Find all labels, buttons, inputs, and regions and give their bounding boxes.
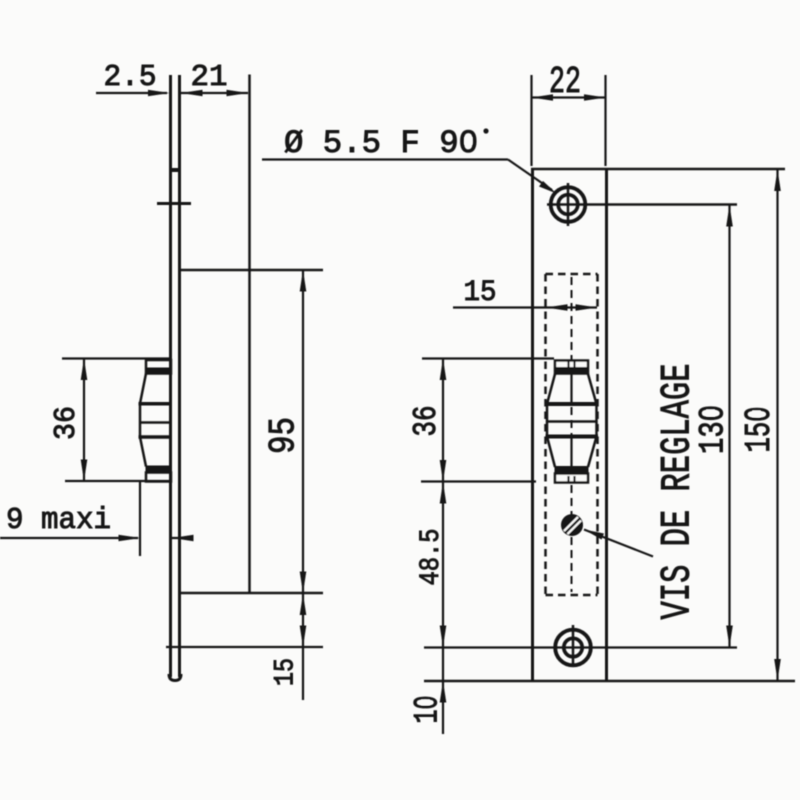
svg-text:9 maxi: 9 maxi [6,503,111,538]
svg-text:VIS DE REGLAGE: VIS DE REGLAGE [654,364,702,620]
svg-text:22: 22 [549,61,581,104]
svg-text:36: 36 [49,406,84,440]
svg-text:48.5: 48.5 [416,529,447,586]
svg-text:15: 15 [271,658,302,686]
svg-text:95: 95 [264,417,306,454]
svg-text:2.5: 2.5 [104,60,157,95]
svg-text:15: 15 [464,276,497,310]
svg-text:21: 21 [191,60,228,95]
svg-text:36: 36 [408,406,445,437]
svg-text:Ø 5.5 F 90: Ø 5.5 F 90 [284,125,478,162]
